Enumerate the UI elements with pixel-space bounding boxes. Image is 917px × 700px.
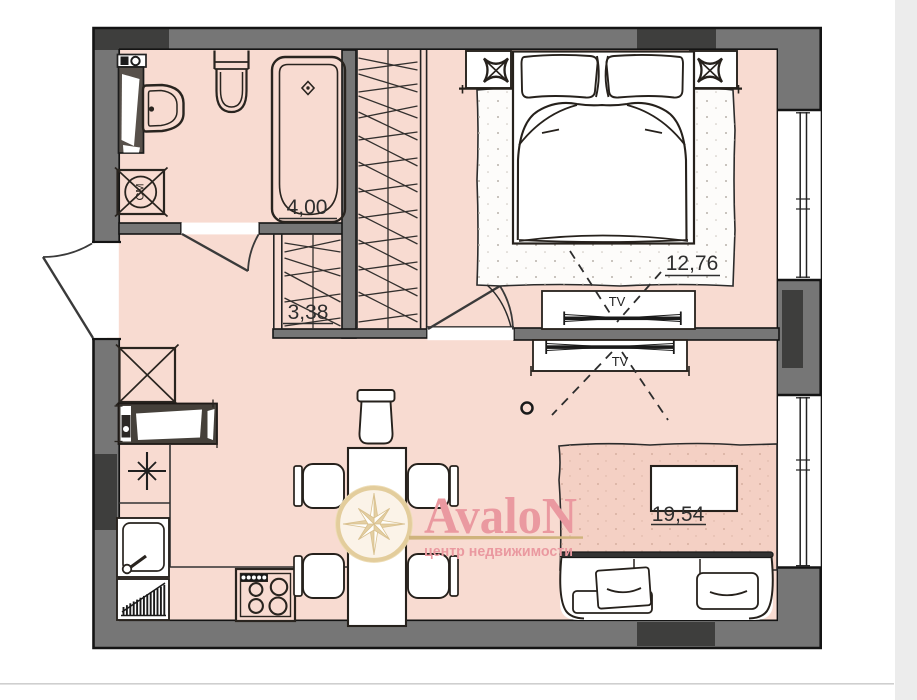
svg-text:12,76: 12,76 [666, 252, 719, 275]
svg-text:3,38: 3,38 [288, 301, 329, 324]
svg-text:4,00: 4,00 [287, 196, 328, 219]
svg-text:центр недвижимости: центр недвижимости [424, 544, 573, 560]
svg-text:TV: TV [612, 354, 629, 369]
svg-text:СМ: СМ [135, 184, 147, 201]
svg-text:TV: TV [609, 294, 626, 309]
svg-text:19,54: 19,54 [652, 503, 705, 526]
svg-text:AvaloN: AvaloN [424, 488, 577, 545]
